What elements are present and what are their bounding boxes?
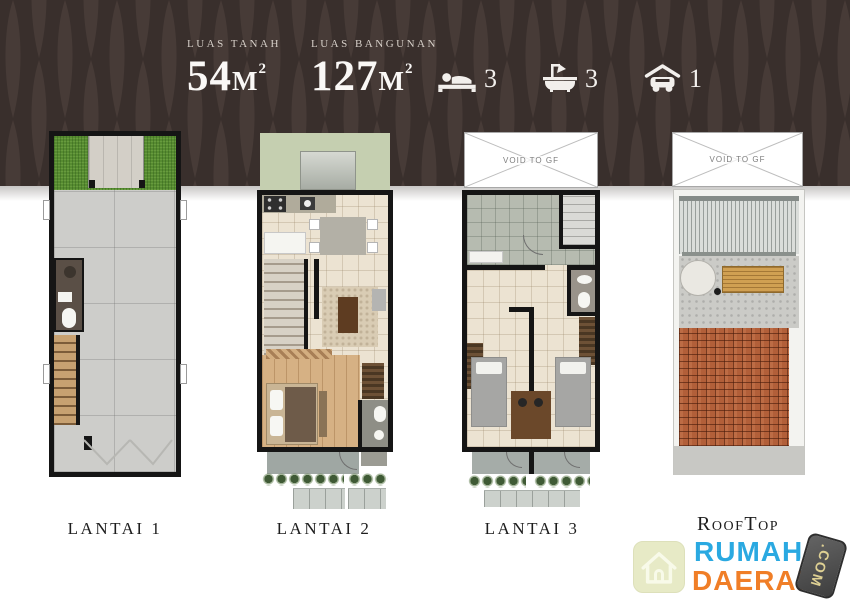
staircase-3f bbox=[559, 195, 595, 249]
kitchen-sink bbox=[300, 197, 315, 210]
bed bbox=[555, 357, 591, 427]
void-label: VOID TO GF bbox=[707, 155, 769, 164]
planter-box bbox=[348, 473, 388, 486]
garage-door-fold-marks bbox=[82, 438, 174, 466]
bed-icon bbox=[438, 65, 476, 92]
planter-pot bbox=[714, 288, 721, 295]
sink-basin bbox=[304, 200, 311, 207]
canopy bbox=[300, 151, 356, 190]
bathroom-2f bbox=[362, 400, 388, 447]
stove bbox=[264, 196, 286, 212]
feature-icons-row: 3 3 bbox=[438, 62, 702, 92]
toilet bbox=[374, 406, 386, 422]
facade-fence bbox=[293, 488, 345, 509]
building-area-label: LUAS BANGUNAN bbox=[311, 38, 438, 50]
staircase-gf bbox=[54, 335, 80, 425]
blanket bbox=[285, 387, 316, 442]
land-area-value: 54M2 bbox=[187, 55, 281, 98]
house-icon bbox=[638, 546, 680, 588]
gate-post bbox=[89, 180, 95, 188]
land-area-label: LUAS TANAH bbox=[187, 38, 281, 50]
pillow bbox=[476, 362, 502, 374]
void-area: VOID TO GF bbox=[464, 132, 598, 188]
bed-bench bbox=[319, 391, 327, 437]
wooden-bench bbox=[722, 266, 784, 293]
roof-deck bbox=[673, 189, 805, 475]
bathroom-3f bbox=[567, 270, 595, 316]
dining-table bbox=[320, 217, 366, 255]
bench-seat bbox=[264, 232, 306, 254]
floorplan-poster: LUAS TANAH 54M2 LUAS BANGUNAN 127M2 3 bbox=[0, 0, 850, 601]
vase bbox=[534, 398, 543, 407]
pillow bbox=[270, 416, 283, 436]
window-marker bbox=[180, 364, 187, 384]
staircase-2f bbox=[264, 259, 308, 355]
service-ledge bbox=[361, 452, 387, 466]
armchair bbox=[372, 289, 386, 311]
floor-3-interior bbox=[462, 190, 600, 452]
label-rooftop: RoofTop bbox=[653, 513, 823, 536]
garage-count: 1 bbox=[689, 66, 702, 92]
window-marker bbox=[43, 200, 50, 220]
void-label: VOID TO GF bbox=[500, 156, 562, 165]
floorplan-lantai-2 bbox=[257, 133, 393, 509]
floorplan-lantai-3: VOID TO GF bbox=[460, 131, 602, 507]
planter-box bbox=[534, 475, 590, 488]
sink bbox=[374, 430, 384, 440]
void-area: VOID TO GF bbox=[672, 132, 803, 187]
building-area-value: 127M2 bbox=[311, 55, 438, 98]
bath-icon bbox=[543, 62, 577, 92]
label-lantai-1: LANTAI 1 bbox=[30, 519, 200, 539]
master-bed bbox=[266, 383, 318, 445]
floorplan-lantai-1 bbox=[49, 131, 181, 477]
dining-chair bbox=[309, 242, 320, 253]
window-marker bbox=[43, 364, 50, 384]
brick-paving bbox=[679, 328, 789, 446]
car-icon bbox=[644, 64, 681, 92]
facade-fence bbox=[348, 488, 386, 509]
planter-box bbox=[468, 475, 526, 488]
window-marker bbox=[180, 200, 187, 220]
dining-chair bbox=[309, 219, 320, 230]
beanbag bbox=[680, 260, 716, 296]
pillow bbox=[560, 362, 586, 374]
balcony-divider bbox=[529, 452, 534, 474]
planter-box bbox=[262, 473, 344, 486]
sink bbox=[58, 292, 72, 302]
garage-feature: 1 bbox=[644, 64, 702, 92]
bathroom-gf bbox=[54, 258, 84, 332]
interior-wall bbox=[314, 259, 319, 319]
building-area-spec: LUAS BANGUNAN 127M2 bbox=[311, 38, 438, 98]
toilet bbox=[578, 292, 590, 308]
watermark-house-tile bbox=[633, 541, 685, 593]
bedroom-feature: 3 bbox=[438, 65, 497, 92]
wardrobe bbox=[362, 363, 384, 399]
gate-post bbox=[139, 180, 145, 188]
dining-chair bbox=[367, 219, 378, 230]
door-swing bbox=[339, 452, 357, 470]
facade-fence bbox=[484, 490, 580, 507]
headboard-shelf bbox=[266, 349, 332, 359]
door-swing bbox=[506, 452, 522, 468]
dining-chair bbox=[367, 242, 378, 253]
vase bbox=[518, 398, 527, 407]
balcony-2f bbox=[267, 452, 359, 474]
bedroom-count: 3 bbox=[484, 66, 497, 92]
desk-unit bbox=[511, 391, 551, 439]
partition-wall bbox=[509, 307, 534, 312]
watermark-word-rumah: RUMAH bbox=[694, 538, 803, 566]
carport-roof bbox=[260, 133, 390, 190]
pillow bbox=[270, 390, 283, 410]
interior-wall bbox=[467, 265, 545, 270]
door-swing bbox=[564, 452, 580, 468]
roof-edge-strip bbox=[674, 446, 804, 475]
bathroom-count: 3 bbox=[585, 66, 598, 92]
tv-cabinet bbox=[338, 297, 358, 333]
balcony-3f bbox=[472, 452, 590, 474]
bed bbox=[471, 357, 507, 427]
sofa bbox=[469, 251, 503, 263]
floorplan-rooftop: VOID TO GF bbox=[666, 131, 808, 493]
entry-path bbox=[88, 136, 144, 188]
basin bbox=[64, 266, 76, 278]
bathroom-feature: 3 bbox=[543, 62, 598, 92]
label-lantai-3: LANTAI 3 bbox=[447, 519, 617, 539]
label-lantai-2: LANTAI 2 bbox=[239, 519, 409, 539]
floor-2-interior bbox=[257, 190, 393, 452]
sink bbox=[577, 275, 592, 284]
land-area-spec: LUAS TANAH 54M2 bbox=[187, 38, 281, 98]
watermark-com-text: .COM bbox=[807, 542, 835, 589]
toilet bbox=[62, 308, 76, 328]
pergola bbox=[679, 196, 799, 254]
